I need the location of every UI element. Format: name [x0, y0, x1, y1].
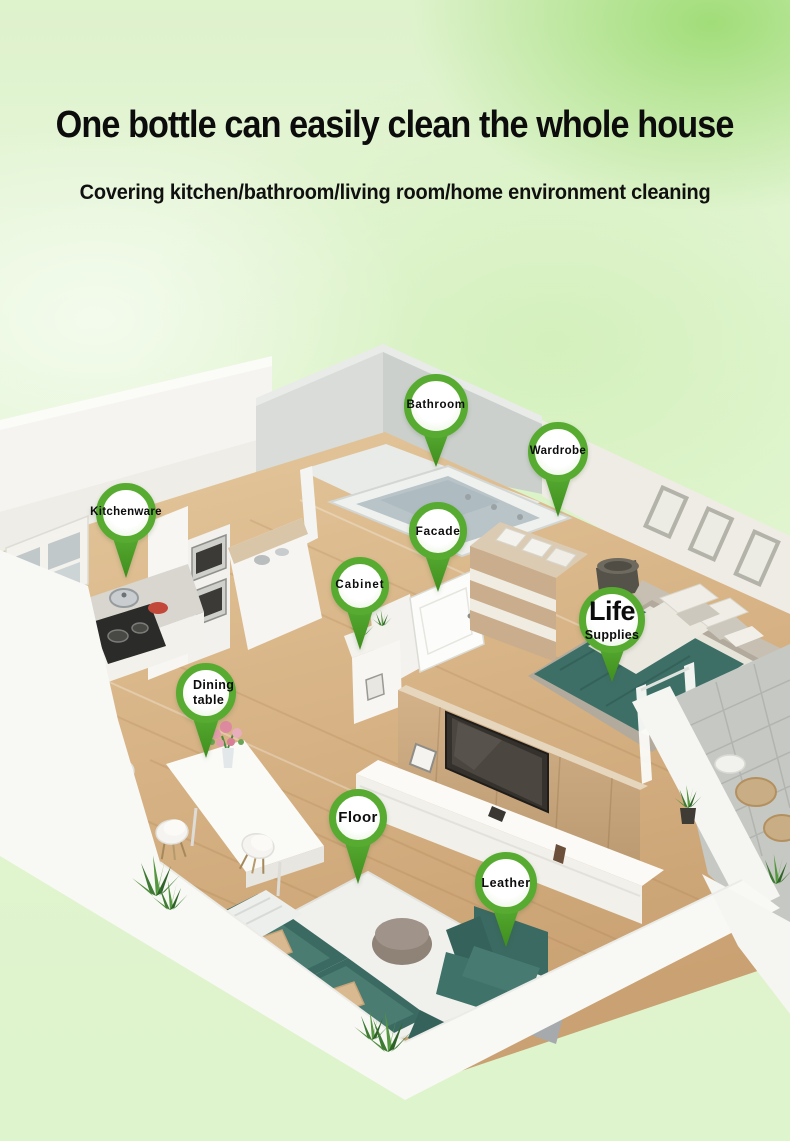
- red-bowl: [148, 602, 168, 614]
- page-title: One bottle can easily clean the whole ho…: [0, 104, 790, 147]
- pin-label: Life Supplies: [585, 598, 640, 643]
- map-pin-facade: Facade: [409, 502, 467, 560]
- rattan-pouf: [764, 815, 790, 841]
- page-title-text: One bottle can easily clean the whole ho…: [56, 104, 734, 147]
- rattan-pouf: [736, 778, 776, 806]
- floor-plan-stage: [0, 0, 790, 1141]
- cooking-pot: [110, 589, 138, 607]
- pin-label: Cabinet: [335, 579, 384, 593]
- page-subtitle: Covering kitchen/bathroom/living room/ho…: [0, 181, 790, 205]
- floor-plan-illustration: [0, 0, 790, 1141]
- map-pin-wardrobe: Wardrobe: [528, 422, 588, 482]
- pin-label: Floor: [338, 809, 378, 827]
- pin-label: Bathroom: [406, 399, 465, 413]
- map-pin-floor: Floor: [329, 789, 387, 847]
- pin-label: Kitchenware: [90, 506, 162, 520]
- map-pin-bathroom: Bathroom: [404, 374, 468, 438]
- map-pin-leather: Leather: [475, 852, 537, 914]
- pin-label: Facade: [416, 524, 461, 538]
- pin-label: Leather: [481, 876, 530, 891]
- page-subtitle-text: Covering kitchen/bathroom/living room/ho…: [80, 181, 711, 205]
- map-pin-dining-table: Dining table: [176, 663, 236, 723]
- pin-label: Dining table: [183, 678, 229, 708]
- map-pin-cabinet: Cabinet: [331, 557, 389, 615]
- map-pin-kitchenware: Kitchenware: [96, 483, 156, 543]
- pin-label: Wardrobe: [530, 445, 586, 459]
- map-pin-life-supplies: Life Supplies: [579, 587, 645, 653]
